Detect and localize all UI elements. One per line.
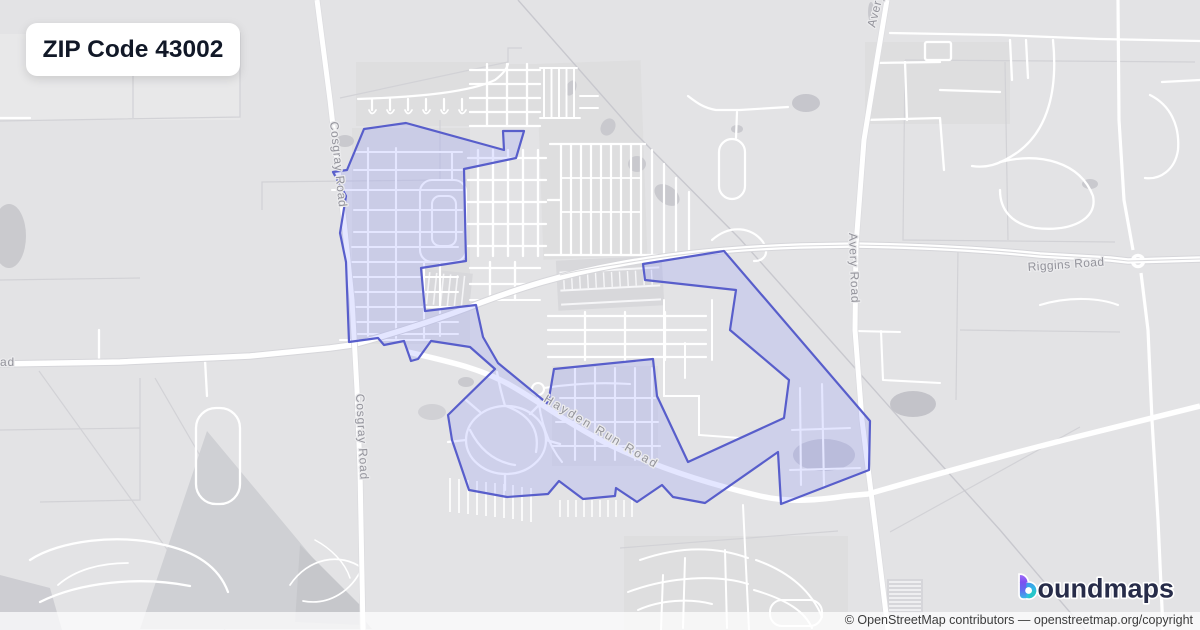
svg-text:ad: ad bbox=[0, 355, 15, 369]
svg-text:oundmaps: oundmaps bbox=[1038, 574, 1175, 604]
svg-text:Avery Road: Avery Road bbox=[846, 233, 862, 304]
